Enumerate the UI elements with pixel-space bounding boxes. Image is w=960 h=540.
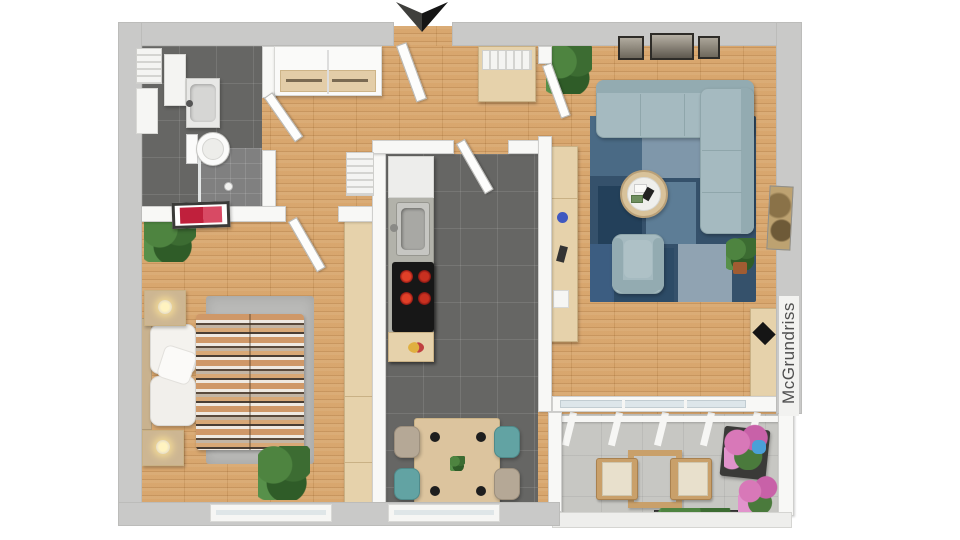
bedroom-wardrobe (344, 208, 374, 504)
wall-kitchen-north (372, 140, 454, 154)
living-sideboard (548, 146, 578, 342)
wall-bathroom-east (262, 150, 276, 208)
stove-burner-icon (400, 292, 413, 305)
bathroom-mirror (164, 54, 186, 106)
armchair-seat (624, 240, 652, 278)
wardrobe-seam (344, 462, 374, 463)
balcony-chair-cushion (602, 462, 632, 496)
wall-picture (698, 36, 720, 59)
table-plant-icon (450, 456, 465, 471)
wall-kitchen-north (508, 140, 542, 154)
shower-head-icon (224, 182, 233, 191)
sofa-cushion-seam (702, 150, 742, 151)
glass-mullion (684, 399, 687, 409)
place-setting-icon (476, 432, 486, 442)
balcony-chair-cushion (678, 462, 708, 496)
decor-box-icon (553, 290, 569, 308)
glass-mullion (622, 399, 625, 409)
sofa-cushion-seam (702, 192, 742, 193)
balcony-flowers-icon (738, 476, 778, 514)
wall-kitchen-west (372, 150, 386, 506)
vanity-sink-basin (190, 84, 216, 122)
stove-burner-icon (418, 292, 431, 305)
sofa-cushion-seam (640, 94, 641, 136)
dining-chair-teal (394, 468, 420, 500)
sink-basin (401, 208, 425, 250)
sofa-cushion-seam (684, 94, 685, 136)
armchair-backrest (616, 280, 660, 293)
cabinet-radiator (482, 50, 532, 70)
desk (750, 308, 778, 398)
dining-chair-beige (494, 468, 520, 500)
bathroom-radiator (136, 48, 162, 84)
blue-bowl-icon (557, 212, 568, 223)
bedside-lamp-icon (156, 440, 170, 454)
rug-patch (590, 244, 614, 302)
right-wall-art (766, 185, 793, 250)
kitchen-upper-cabinet (388, 156, 434, 198)
watermark-text: McGrundriss (779, 285, 801, 421)
toilet-seat (202, 138, 224, 160)
book-icon (631, 195, 643, 203)
closet-divider (327, 50, 329, 94)
terracotta-pot (733, 262, 747, 274)
dining-chair-teal (494, 426, 520, 458)
closet-rail-icon (332, 79, 368, 82)
bedroom-window-glass (216, 510, 326, 515)
sideboard-seam (548, 198, 578, 199)
bed-pillow (150, 376, 196, 426)
bedroom-plant-icon (258, 446, 310, 500)
wall-living-west (538, 136, 552, 412)
sofa-backrest (741, 88, 754, 234)
wall-picture (650, 33, 694, 60)
rug-patch (678, 244, 732, 302)
watering-can-icon (752, 440, 766, 454)
dining-chair-beige (394, 426, 420, 458)
wall-picture (618, 36, 644, 60)
bathroom-niche-panel (136, 88, 158, 134)
stove-burner-icon (418, 270, 431, 283)
bedside-lamp-icon (158, 300, 172, 314)
wall-living-west (538, 46, 552, 64)
balcony-wall-left (548, 412, 562, 512)
place-setting-icon (430, 486, 440, 496)
duvet-center-seam (249, 314, 251, 450)
red-wall-art-canvas (180, 206, 223, 223)
sink-faucet-icon (390, 224, 398, 232)
closet-rail-icon (286, 79, 322, 82)
balcony-railing (552, 512, 792, 528)
wardrobe-seam (344, 396, 374, 397)
fruit-bowl-icon (408, 342, 424, 353)
place-setting-icon (476, 486, 486, 496)
vanity-faucet-icon (186, 100, 193, 107)
balcony-door-glass (560, 400, 746, 408)
stove-burner-icon (400, 270, 413, 283)
floor-plan-canvas: McGrundriss (0, 0, 960, 540)
hall-radiator (346, 152, 374, 196)
place-setting-icon (430, 432, 440, 442)
exterior-wall-top (118, 22, 394, 46)
kitchen-window-glass (394, 510, 494, 515)
balcony-wall-right (778, 412, 794, 516)
